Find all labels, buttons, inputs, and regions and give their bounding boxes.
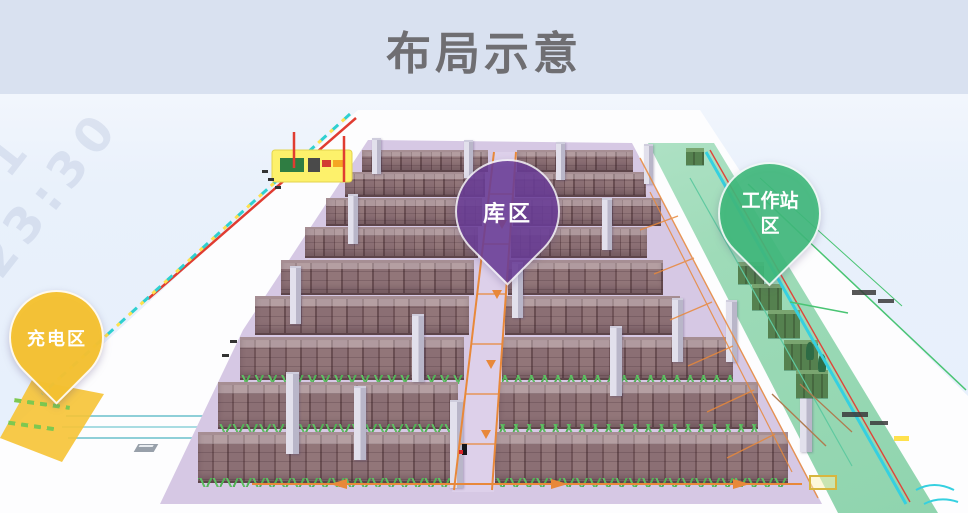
pin-storage-label: 库区 xyxy=(455,159,561,265)
pin-storage-area: 库区 xyxy=(455,159,561,287)
pin-charging-label: 充电区 xyxy=(9,290,105,386)
cad-detail-cluster xyxy=(222,132,352,357)
warehouse-3d-scene: 库区 工作站区 充电区 xyxy=(0,94,968,513)
slide-root: 布局示意 001 23:30 xyxy=(0,0,968,513)
pin-workstation-area: 工作站区 xyxy=(718,162,822,288)
pin-charging-area: 充电区 xyxy=(9,290,105,406)
pin-workstation-label: 工作站区 xyxy=(718,162,822,266)
person-marker xyxy=(462,444,467,455)
front-path xyxy=(252,479,802,489)
page-title: 布局示意 xyxy=(386,13,582,82)
slide-header: 布局示意 xyxy=(0,0,968,94)
